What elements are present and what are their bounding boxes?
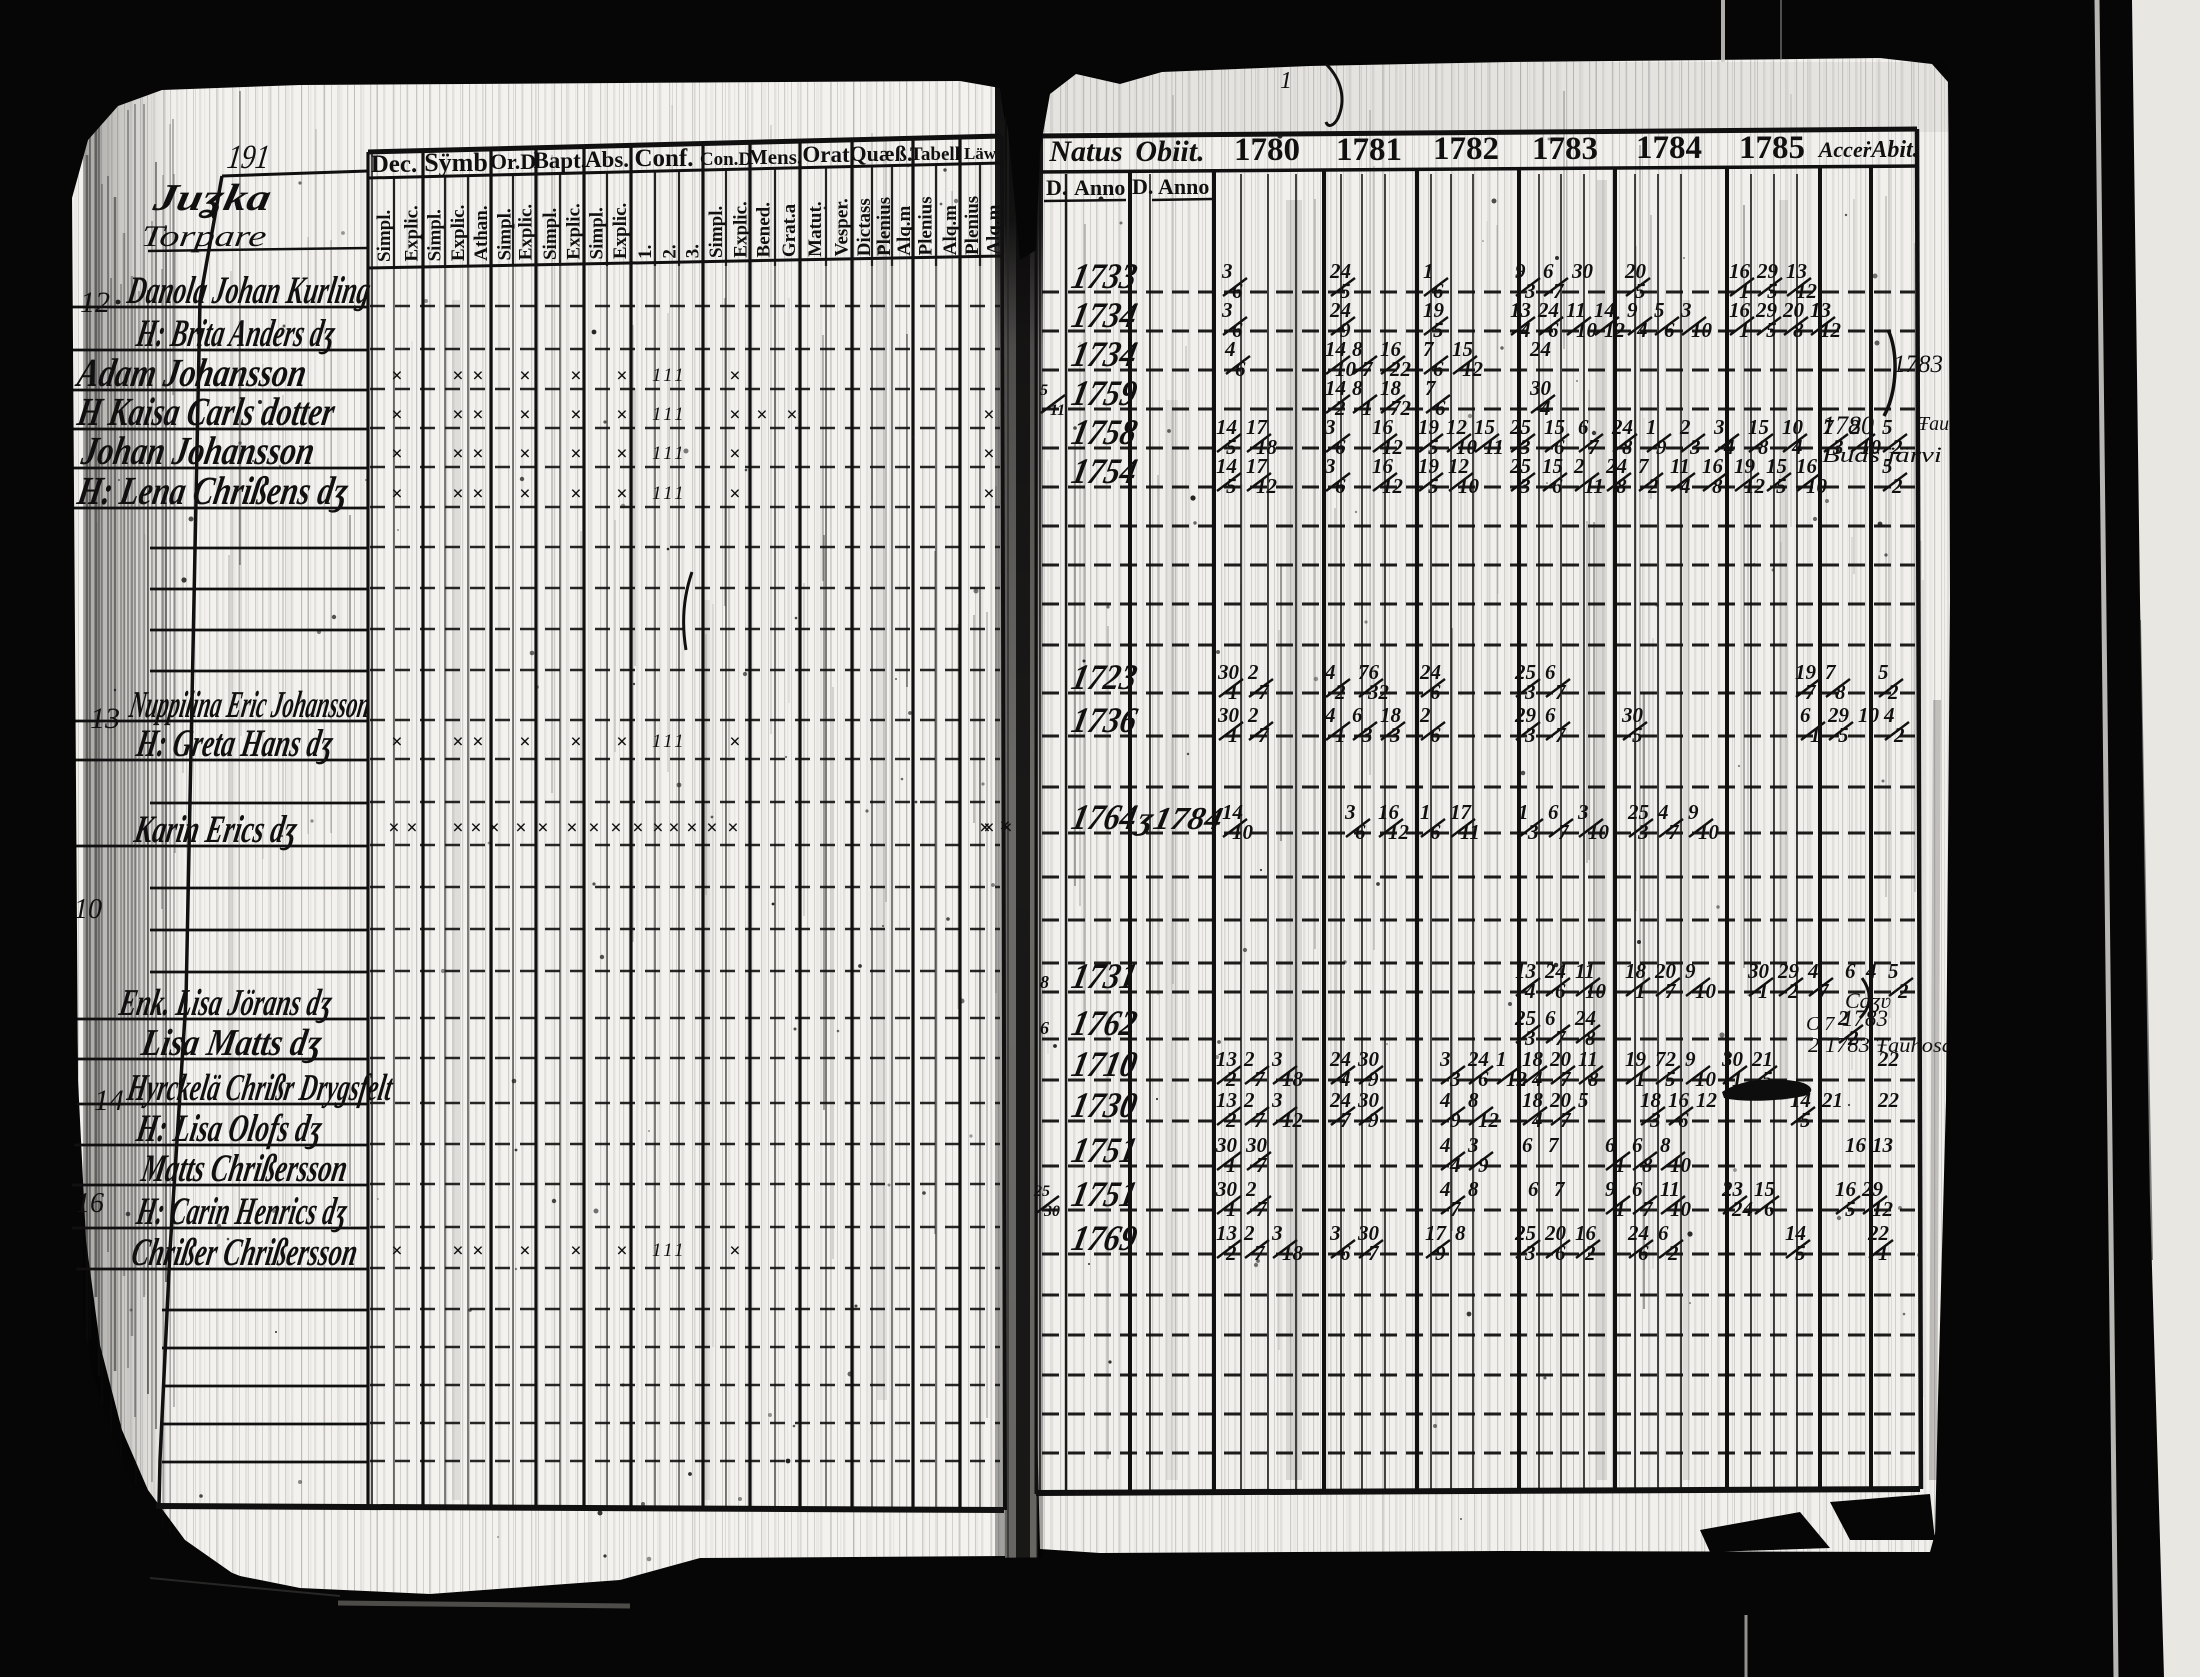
svg-text:111: 111 — [652, 483, 687, 504]
svg-text:×: × — [616, 731, 627, 753]
svg-text:22: 22 — [1877, 1088, 1900, 1112]
svg-text:Enk. Lisa Jörans dʒ: Enk. Lisa Jörans dʒ — [116, 982, 336, 1024]
svg-text:×: × — [391, 731, 402, 753]
svg-text:Anno: Anno — [1074, 175, 1125, 200]
svg-text:2.: 2. — [659, 244, 680, 258]
svg-text:13: 13 — [90, 702, 120, 735]
svg-text:4: 4 — [1657, 800, 1669, 824]
svg-text:Matts Chrißersson: Matts Chrißersson — [138, 1146, 351, 1190]
svg-text:×: × — [729, 483, 740, 505]
svg-text:Lisa Matts dʒ: Lisa Matts dʒ — [138, 1022, 326, 1064]
svg-text:8: 8 — [1455, 1221, 1466, 1245]
svg-text:Chrißer Chrißersson: Chrißer Chrißersson — [128, 1230, 361, 1274]
svg-text:×: × — [727, 817, 738, 839]
svg-text:×: × — [519, 483, 530, 505]
svg-text:1734: 1734 — [1068, 295, 1140, 335]
svg-text:×: × — [729, 731, 740, 753]
svg-text:1762: 1762 — [1068, 1003, 1140, 1043]
svg-text:×: × — [452, 443, 463, 465]
svg-text:1: 1 — [1280, 68, 1292, 94]
svg-text:3: 3 — [1221, 298, 1233, 322]
svg-text:1764: 1764 — [1068, 797, 1140, 837]
svg-text:Conf.: Conf. — [634, 145, 693, 172]
svg-text:191: 191 — [225, 139, 272, 176]
svg-text:D.: D. — [1132, 174, 1153, 199]
svg-text:4: 4 — [1807, 959, 1819, 983]
svg-text:×: × — [616, 1240, 627, 1262]
svg-text:1783: 1783 — [1842, 1006, 1888, 1031]
svg-text:3.: 3. — [683, 244, 704, 258]
svg-text:Explic.: Explic. — [401, 205, 422, 261]
svg-text:1751: 1751 — [1068, 1174, 1140, 1214]
svg-text:×: × — [472, 483, 483, 505]
svg-text:1730: 1730 — [1068, 1085, 1140, 1125]
svg-text:H: Lena Chrißens dʒ: H: Lena Chrißens dʒ — [74, 468, 353, 513]
svg-text:111: 111 — [652, 731, 687, 752]
svg-text:1769: 1769 — [1068, 1218, 1140, 1258]
svg-text:D.: D. — [1046, 175, 1067, 200]
svg-text:×: × — [570, 483, 581, 505]
svg-text:×: × — [983, 404, 994, 426]
svg-text:Mens.: Mens. — [748, 145, 802, 169]
svg-text:1731: 1731 — [1068, 956, 1140, 996]
svg-text:1780: 1780 — [1234, 132, 1300, 168]
svg-text:1783: 1783 — [1532, 131, 1598, 167]
svg-text:×: × — [616, 365, 627, 387]
svg-text:6: 6 — [1845, 959, 1856, 983]
svg-text:1754: 1754 — [1068, 451, 1140, 491]
svg-text:H: Greta Hans dʒ: H: Greta Hans dʒ — [133, 721, 337, 765]
svg-text:1782: 1782 — [1433, 131, 1499, 167]
svg-text:Simpl.: Simpl. — [374, 210, 395, 262]
svg-text:Alq.m: Alq.m — [940, 205, 961, 255]
svg-text:×: × — [519, 365, 530, 387]
svg-text:×: × — [452, 483, 463, 505]
svg-text:3: 3 — [1271, 1221, 1283, 1245]
svg-text:3: 3 — [1324, 415, 1336, 439]
svg-text:Bapt.: Bapt. — [533, 148, 586, 173]
svg-text:Karin Erics dʒ: Karin Erics dʒ — [131, 807, 301, 851]
svg-text:1: 1 — [1423, 259, 1434, 283]
svg-text:C 7: C 7 — [1806, 1013, 1835, 1035]
svg-text:×: × — [452, 817, 463, 839]
svg-text:Bened.: Bened. — [754, 202, 775, 257]
svg-text:8: 8 — [1040, 972, 1049, 992]
svg-text:×: × — [488, 817, 499, 839]
svg-text:Explic.: Explic. — [730, 201, 751, 257]
svg-text:3: 3 — [1439, 1047, 1451, 1071]
svg-text:Dec.: Dec. — [371, 151, 418, 178]
svg-text:30: 30 — [1571, 259, 1594, 283]
svg-text:1758: 1758 — [1068, 412, 1140, 452]
svg-text:×: × — [983, 443, 994, 465]
svg-text:5: 5 — [1578, 1088, 1589, 1112]
svg-text:1783: 1783 — [1893, 351, 1943, 378]
svg-text:×: × — [979, 817, 990, 839]
svg-text:Plenius: Plenius — [874, 197, 895, 256]
svg-text:Simpl.: Simpl. — [540, 208, 561, 260]
svg-text:1736: 1736 — [1068, 700, 1141, 740]
svg-text:1: 1 — [1496, 1047, 1507, 1071]
svg-text:×: × — [616, 483, 627, 505]
svg-text:3: 3 — [1713, 415, 1725, 439]
svg-text:Danola Johan Kurling: Danola Johan Kurling — [124, 268, 374, 312]
svg-text:1785: 1785 — [1739, 130, 1805, 166]
svg-text:H: Carin Henrics dʒ: H: Carin Henrics dʒ — [133, 1189, 351, 1233]
svg-text:×: × — [470, 817, 481, 839]
svg-text:4: 4 — [1439, 1088, 1451, 1112]
svg-text:Grat.a: Grat.a — [779, 203, 800, 257]
svg-text:×: × — [391, 404, 402, 426]
svg-text:×: × — [756, 404, 767, 426]
svg-text:×: × — [686, 817, 697, 839]
svg-text:Obiit.: Obiit. — [1135, 135, 1204, 168]
svg-text:10: 10 — [1858, 703, 1880, 727]
svg-text:×: × — [588, 817, 599, 839]
svg-text:3: 3 — [1344, 800, 1356, 824]
svg-text:3: 3 — [1680, 298, 1692, 322]
svg-text:×: × — [652, 817, 663, 839]
svg-text:Adam Johansson: Adam Johansson — [72, 350, 310, 395]
svg-text:Natus: Natus — [1048, 135, 1122, 168]
svg-text:×: × — [616, 443, 627, 465]
svg-text:7: 7 — [1554, 1177, 1566, 1201]
svg-text:25: 25 — [1033, 1183, 1050, 1200]
svg-text:×: × — [786, 404, 797, 426]
svg-text:3: 3 — [1221, 259, 1233, 283]
svg-text:1734: 1734 — [1068, 334, 1140, 374]
svg-text:×: × — [452, 365, 463, 387]
svg-text:×: × — [515, 817, 526, 839]
svg-text:×: × — [406, 817, 417, 839]
svg-text:1784: 1784 — [1636, 130, 1702, 166]
svg-text:×: × — [570, 443, 581, 465]
svg-text:Nuppilina Eric Johansson: Nuppilina Eric Johansson — [126, 684, 374, 726]
svg-text:6: 6 — [1522, 1133, 1533, 1157]
svg-text:1.: 1. — [635, 245, 656, 259]
svg-text:1723: 1723 — [1068, 657, 1140, 697]
svg-text:Juʓka: Juʓka — [149, 177, 275, 219]
svg-text:×: × — [391, 1240, 402, 1262]
svg-text:Abit.: Abit. — [1869, 137, 1918, 163]
svg-text:Sÿmb: Sÿmb — [424, 148, 488, 177]
svg-text:5: 5 — [1040, 382, 1048, 399]
svg-text:6: 6 — [1528, 1177, 1539, 1201]
svg-text:Matut.: Matut. — [805, 201, 826, 256]
svg-text:×: × — [570, 365, 581, 387]
svg-text:1710: 1710 — [1068, 1044, 1140, 1084]
svg-text:Simpl.: Simpl. — [706, 206, 727, 258]
svg-text:Johan Johansson: Johan Johansson — [78, 428, 319, 473]
svg-text:Plenius: Plenius — [916, 196, 937, 255]
svg-text:12: 12 — [1696, 1088, 1718, 1112]
svg-text:×: × — [537, 817, 548, 839]
svg-text:1: 1 — [1420, 800, 1431, 824]
svg-text:1781: 1781 — [1336, 132, 1402, 168]
svg-text:×: × — [519, 731, 530, 753]
svg-text:×: × — [610, 817, 621, 839]
svg-text:Vesper.: Vesper. — [831, 198, 852, 256]
svg-text:×: × — [472, 365, 483, 387]
svg-text:×: × — [391, 365, 402, 387]
svg-text:Explic.: Explic. — [448, 205, 469, 261]
svg-text:6: 6 — [1040, 1018, 1049, 1038]
svg-text:Simpl.: Simpl. — [494, 208, 515, 260]
svg-text:Athan.: Athan. — [471, 205, 492, 260]
svg-text:×: × — [472, 731, 483, 753]
svg-text:Hyrckelä Chrißr Drygsfelt: Hyrckelä Chrißr Drygsfelt — [124, 1067, 397, 1109]
svg-text:×: × — [706, 817, 717, 839]
svg-text:111: 111 — [652, 1240, 687, 1261]
svg-text:Anno: Anno — [1158, 174, 1209, 199]
svg-text:5: 5 — [1654, 298, 1665, 322]
svg-text:Dictass: Dictass — [854, 198, 875, 256]
svg-text:7: 7 — [1548, 1133, 1560, 1157]
svg-text:H: Lisa Olofs dʒ: H: Lisa Olofs dʒ — [133, 1106, 326, 1150]
svg-text:4: 4 — [1324, 703, 1336, 727]
svg-text:Alq.m: Alq.m — [894, 205, 915, 255]
svg-text:×: × — [983, 483, 994, 505]
svg-text:3: 3 — [1467, 1133, 1479, 1157]
svg-text:1751: 1751 — [1068, 1130, 1140, 1170]
svg-text:5: 5 — [1878, 660, 1889, 684]
svg-text:Acceṙ: Acceṙ — [1817, 137, 1872, 162]
svg-text:Or.D: Or.D — [490, 149, 536, 174]
svg-text:1: 1 — [1518, 800, 1529, 824]
svg-text:×: × — [632, 817, 643, 839]
svg-text:4: 4 — [1883, 703, 1895, 727]
svg-text:×: × — [388, 817, 399, 839]
svg-text:4: 4 — [1439, 1133, 1451, 1157]
svg-text:×: × — [519, 443, 530, 465]
svg-text:Alq.m: Alq.m — [983, 204, 1004, 254]
svg-text:×: × — [668, 817, 679, 839]
svg-text:×: × — [570, 404, 581, 426]
svg-text:×: × — [729, 404, 740, 426]
svg-text:5: 5 — [1882, 415, 1893, 439]
svg-text:Läw: Läw — [964, 144, 997, 163]
svg-text:Quæß.: Quæß. — [850, 141, 913, 166]
svg-text:3: 3 — [1271, 1047, 1283, 1071]
svg-text:1733: 1733 — [1068, 256, 1140, 296]
svg-text:3: 3 — [1329, 1221, 1341, 1245]
svg-text:Buds järvi: Buds järvi — [1822, 442, 1942, 467]
svg-text:111: 111 — [652, 365, 687, 386]
svg-text:Explic.: Explic. — [516, 204, 537, 260]
svg-text:×: × — [729, 365, 740, 387]
svg-text:1: 1 — [1646, 415, 1657, 439]
svg-text:×: × — [566, 817, 577, 839]
svg-text:Explic.: Explic. — [610, 203, 631, 259]
svg-text:4: 4 — [1439, 1177, 1451, 1201]
svg-text:H: Brita Anders dʒ: H: Brita Anders dʒ — [133, 311, 339, 355]
svg-text:×: × — [452, 1240, 463, 1262]
svg-text:Simpl.: Simpl. — [425, 209, 446, 261]
svg-text:×: × — [472, 1240, 483, 1262]
svg-text:ʒ1784: ʒ1784 — [1132, 800, 1226, 836]
svg-text:×: × — [519, 404, 530, 426]
svg-text:21: 21 — [1821, 1088, 1843, 1112]
svg-text:Con.D: Con.D — [700, 149, 752, 170]
svg-text:×: × — [472, 443, 483, 465]
svg-text:14: 14 — [94, 1084, 124, 1117]
svg-text:1780: 1780 — [1822, 411, 1874, 440]
svg-text:×: × — [999, 815, 1010, 837]
svg-text:24: 24 — [1529, 337, 1551, 361]
svg-text:4: 4 — [1865, 959, 1877, 983]
svg-text:Simpl.: Simpl. — [587, 207, 608, 259]
svg-text:×: × — [616, 404, 627, 426]
svg-text:Orat: Orat — [802, 142, 850, 167]
svg-text:16: 16 — [1845, 1133, 1867, 1157]
svg-text:3: 3 — [1577, 800, 1589, 824]
svg-text:5: 5 — [1888, 959, 1899, 983]
svg-text:8: 8 — [1468, 1177, 1479, 1201]
svg-text:10: 10 — [74, 894, 102, 925]
svg-text:3: 3 — [1271, 1088, 1283, 1112]
svg-text:×: × — [729, 1240, 740, 1262]
svg-text:12: 12 — [80, 286, 110, 319]
svg-text:×: × — [452, 731, 463, 753]
svg-text:×: × — [570, 731, 581, 753]
svg-text:Torpare: Torpare — [139, 219, 269, 253]
svg-text:×: × — [519, 1240, 530, 1262]
svg-text:×: × — [391, 443, 402, 465]
svg-text:1759: 1759 — [1068, 373, 1140, 413]
svg-text:Tabell: Tabell — [910, 144, 960, 165]
svg-text:13: 13 — [1872, 1133, 1893, 1157]
svg-text:Plenius: Plenius — [962, 196, 983, 255]
svg-text:4: 4 — [1324, 660, 1336, 684]
svg-text:Explic.: Explic. — [563, 203, 584, 259]
svg-text:111: 111 — [652, 404, 687, 425]
svg-text:×: × — [391, 483, 402, 505]
svg-text:×: × — [472, 404, 483, 426]
svg-text:3: 3 — [1324, 454, 1336, 478]
svg-text:×: × — [729, 443, 740, 465]
svg-text:×: × — [570, 1240, 581, 1262]
svg-text:4: 4 — [1224, 337, 1236, 361]
svg-text:Abs.: Abs. — [585, 147, 629, 172]
svg-text:111: 111 — [652, 443, 687, 464]
svg-text:×: × — [452, 404, 463, 426]
svg-text:16: 16 — [76, 1188, 104, 1219]
svg-text:H Kaisa Carls dotter: H Kaisa Carls dotter — [74, 389, 339, 434]
